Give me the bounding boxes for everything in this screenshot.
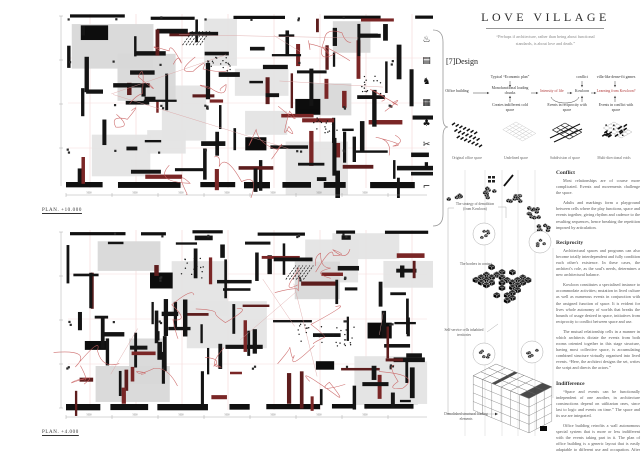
svg-text:5000: 5000 <box>224 414 230 417</box>
svg-text:5000: 5000 <box>86 192 92 195</box>
plan-label-lower: PLAN. +4.000 <box>42 430 79 435</box>
svg-text:5000: 5000 <box>178 414 184 417</box>
right-column: LOVE VILLAGE “Perhaps if architecture, r… <box>440 0 641 452</box>
axon-label-demolished: Demolished structural loading elements <box>442 412 490 421</box>
section-paragraph: Most relationships are of course more co… <box>556 178 640 196</box>
section-paragraph: The mutual relationship cells in a manne… <box>556 329 640 372</box>
plan-label-upper: PLAN. +10.000 <box>42 208 82 213</box>
svg-text:5000: 5000 <box>270 414 276 417</box>
floor-plan-upper: 5000500050005000500050005000 <box>28 8 433 198</box>
legend-strip: ♨ ▤ ♞ ▦ ♣ ✂ ▮ ⌐ <box>419 36 434 192</box>
svg-text:5000: 5000 <box>362 414 368 417</box>
section-heading: Indifference <box>556 381 640 387</box>
plant-icon: ♣ <box>422 120 430 129</box>
poster: 5000500050005000500050005000 PLAN. +10.0… <box>0 0 641 452</box>
flow-node-monofunctional: Monofunctional loading chunks <box>490 86 530 95</box>
section-heading: Reciprocity <box>556 240 640 246</box>
quote-line-2: standards, is about love and death.” <box>516 41 575 46</box>
axon-label-cells: Self-service cells inhabited territories <box>442 328 486 337</box>
mini-subdivision: Subdivision of space <box>542 116 588 160</box>
flow-node-intensity: Intensity of life <box>538 89 566 94</box>
mini-multidirectional-drawing <box>591 116 637 150</box>
svg-text:5000: 5000 <box>132 192 138 195</box>
flow-label-conflict-space: Events in conflict with space <box>596 103 636 112</box>
studio-logo: [7]Design <box>446 57 478 66</box>
mini-multidirectional: Multi-directional voids <box>591 116 637 160</box>
mini-caption: Undefined space <box>493 156 539 160</box>
svg-text:5000: 5000 <box>316 414 322 417</box>
net-icon: ▦ <box>422 99 431 108</box>
svg-text:5000: 5000 <box>316 192 322 195</box>
book-icon: ▮ <box>424 162 429 171</box>
svg-text:5000: 5000 <box>86 414 92 417</box>
section-heading: Conflict <box>556 170 640 176</box>
svg-text:5000: 5000 <box>178 192 184 195</box>
section-indifference: Indifference “Space and events can be fu… <box>556 381 640 452</box>
section-paragraph: “Space and events can be functionally in… <box>556 389 640 419</box>
floor-plan-lower: 5000500050005000500050005000 <box>28 224 433 420</box>
mini-undefined-space: Undefined space <box>493 116 539 160</box>
flow-node-kowloon: Kowloon <box>571 89 593 94</box>
scissors-icon: ✂ <box>423 141 431 150</box>
mini-original-office-drawing <box>444 116 490 150</box>
svg-text:5000: 5000 <box>362 192 368 195</box>
svg-text:5000: 5000 <box>224 192 230 195</box>
mini-caption: Subdivision of space <box>542 156 588 160</box>
essay-column: Conflict Most relationships are of cours… <box>556 170 640 452</box>
section-paragraph: Architectural spaces and programs can al… <box>556 248 640 278</box>
mini-caption: Multi-directional voids <box>591 156 637 160</box>
flow-label-cold-space: Creates indifferent cold space <box>488 103 532 112</box>
section-paragraph: Office building retrofits a wall autonom… <box>556 423 640 452</box>
poster-title: LOVE VILLAGE <box>460 10 631 25</box>
subtitle-quote: “Perhaps if architecture, rather than be… <box>460 34 631 47</box>
svg-text:5000: 5000 <box>270 192 276 195</box>
flow-label-reciprocity: Events in reciprocity with space <box>544 103 590 112</box>
concept-flow-diagram: Office building Typical “Economic plan” … <box>440 72 641 116</box>
section-paragraph: Adults and markings form a playground be… <box>556 200 640 230</box>
axon-label-strategy: The strategy of demolition (from Kowloon… <box>452 202 498 211</box>
radiator-icon: ▤ <box>422 57 431 66</box>
quote-line-1: “Perhaps if architecture, rather than be… <box>496 34 594 39</box>
mini-caption: Original office space <box>444 156 490 160</box>
pet-icon: ♞ <box>422 78 430 87</box>
flow-node-learning: Learning from Kowloon? <box>595 89 637 94</box>
mini-diagram-row: Original office space Undefined space Su… <box>440 116 641 170</box>
section-reciprocity: Reciprocity Architectural spaces and pro… <box>556 240 640 372</box>
flow-label-economic-plan: Typical “Economic plan” <box>488 75 532 80</box>
mini-undefined-space-drawing <box>493 116 539 150</box>
svg-text:5000: 5000 <box>132 414 138 417</box>
flow-label-conflict: conflict <box>570 75 594 80</box>
hook-icon: ⌐ <box>423 183 431 192</box>
mini-original-office: Original office space <box>444 116 490 160</box>
mini-subdivision-drawing <box>542 116 588 150</box>
flow-node-office-building: Office building <box>442 89 472 94</box>
flow-label-dense-fit: villa-like dense-fit games <box>596 75 636 80</box>
title-divider <box>486 28 604 29</box>
section-paragraph: Kowloon constitutes a specialised instan… <box>556 282 640 325</box>
axon-label-borders: The borders in contact <box>458 262 494 267</box>
kettle-icon: ♨ <box>422 36 430 45</box>
section-conflict: Conflict Most relationships are of cours… <box>556 170 640 231</box>
